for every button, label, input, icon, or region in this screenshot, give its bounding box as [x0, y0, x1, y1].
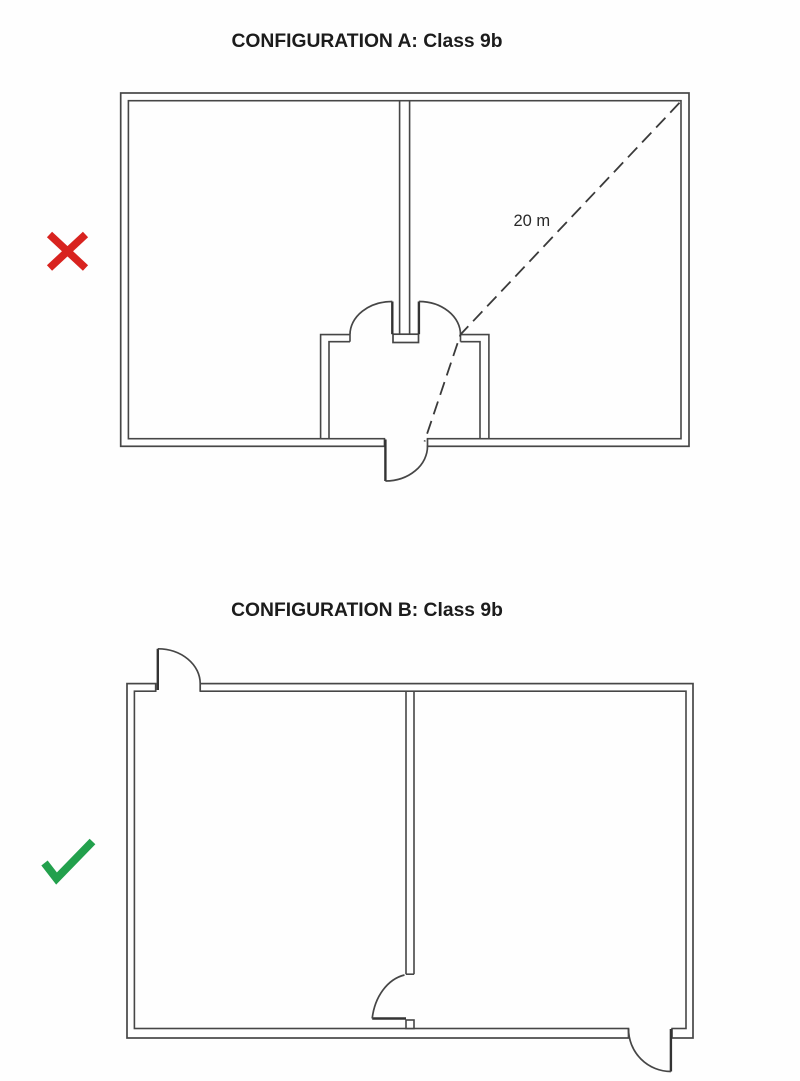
- svg-text:CONFIGURATION B: Class 9b: CONFIGURATION B: Class 9b: [231, 600, 503, 621]
- svg-text:CONFIGURATION A: Class 9b: CONFIGURATION A: Class 9b: [231, 31, 502, 52]
- svg-text:20 m: 20 m: [514, 212, 551, 230]
